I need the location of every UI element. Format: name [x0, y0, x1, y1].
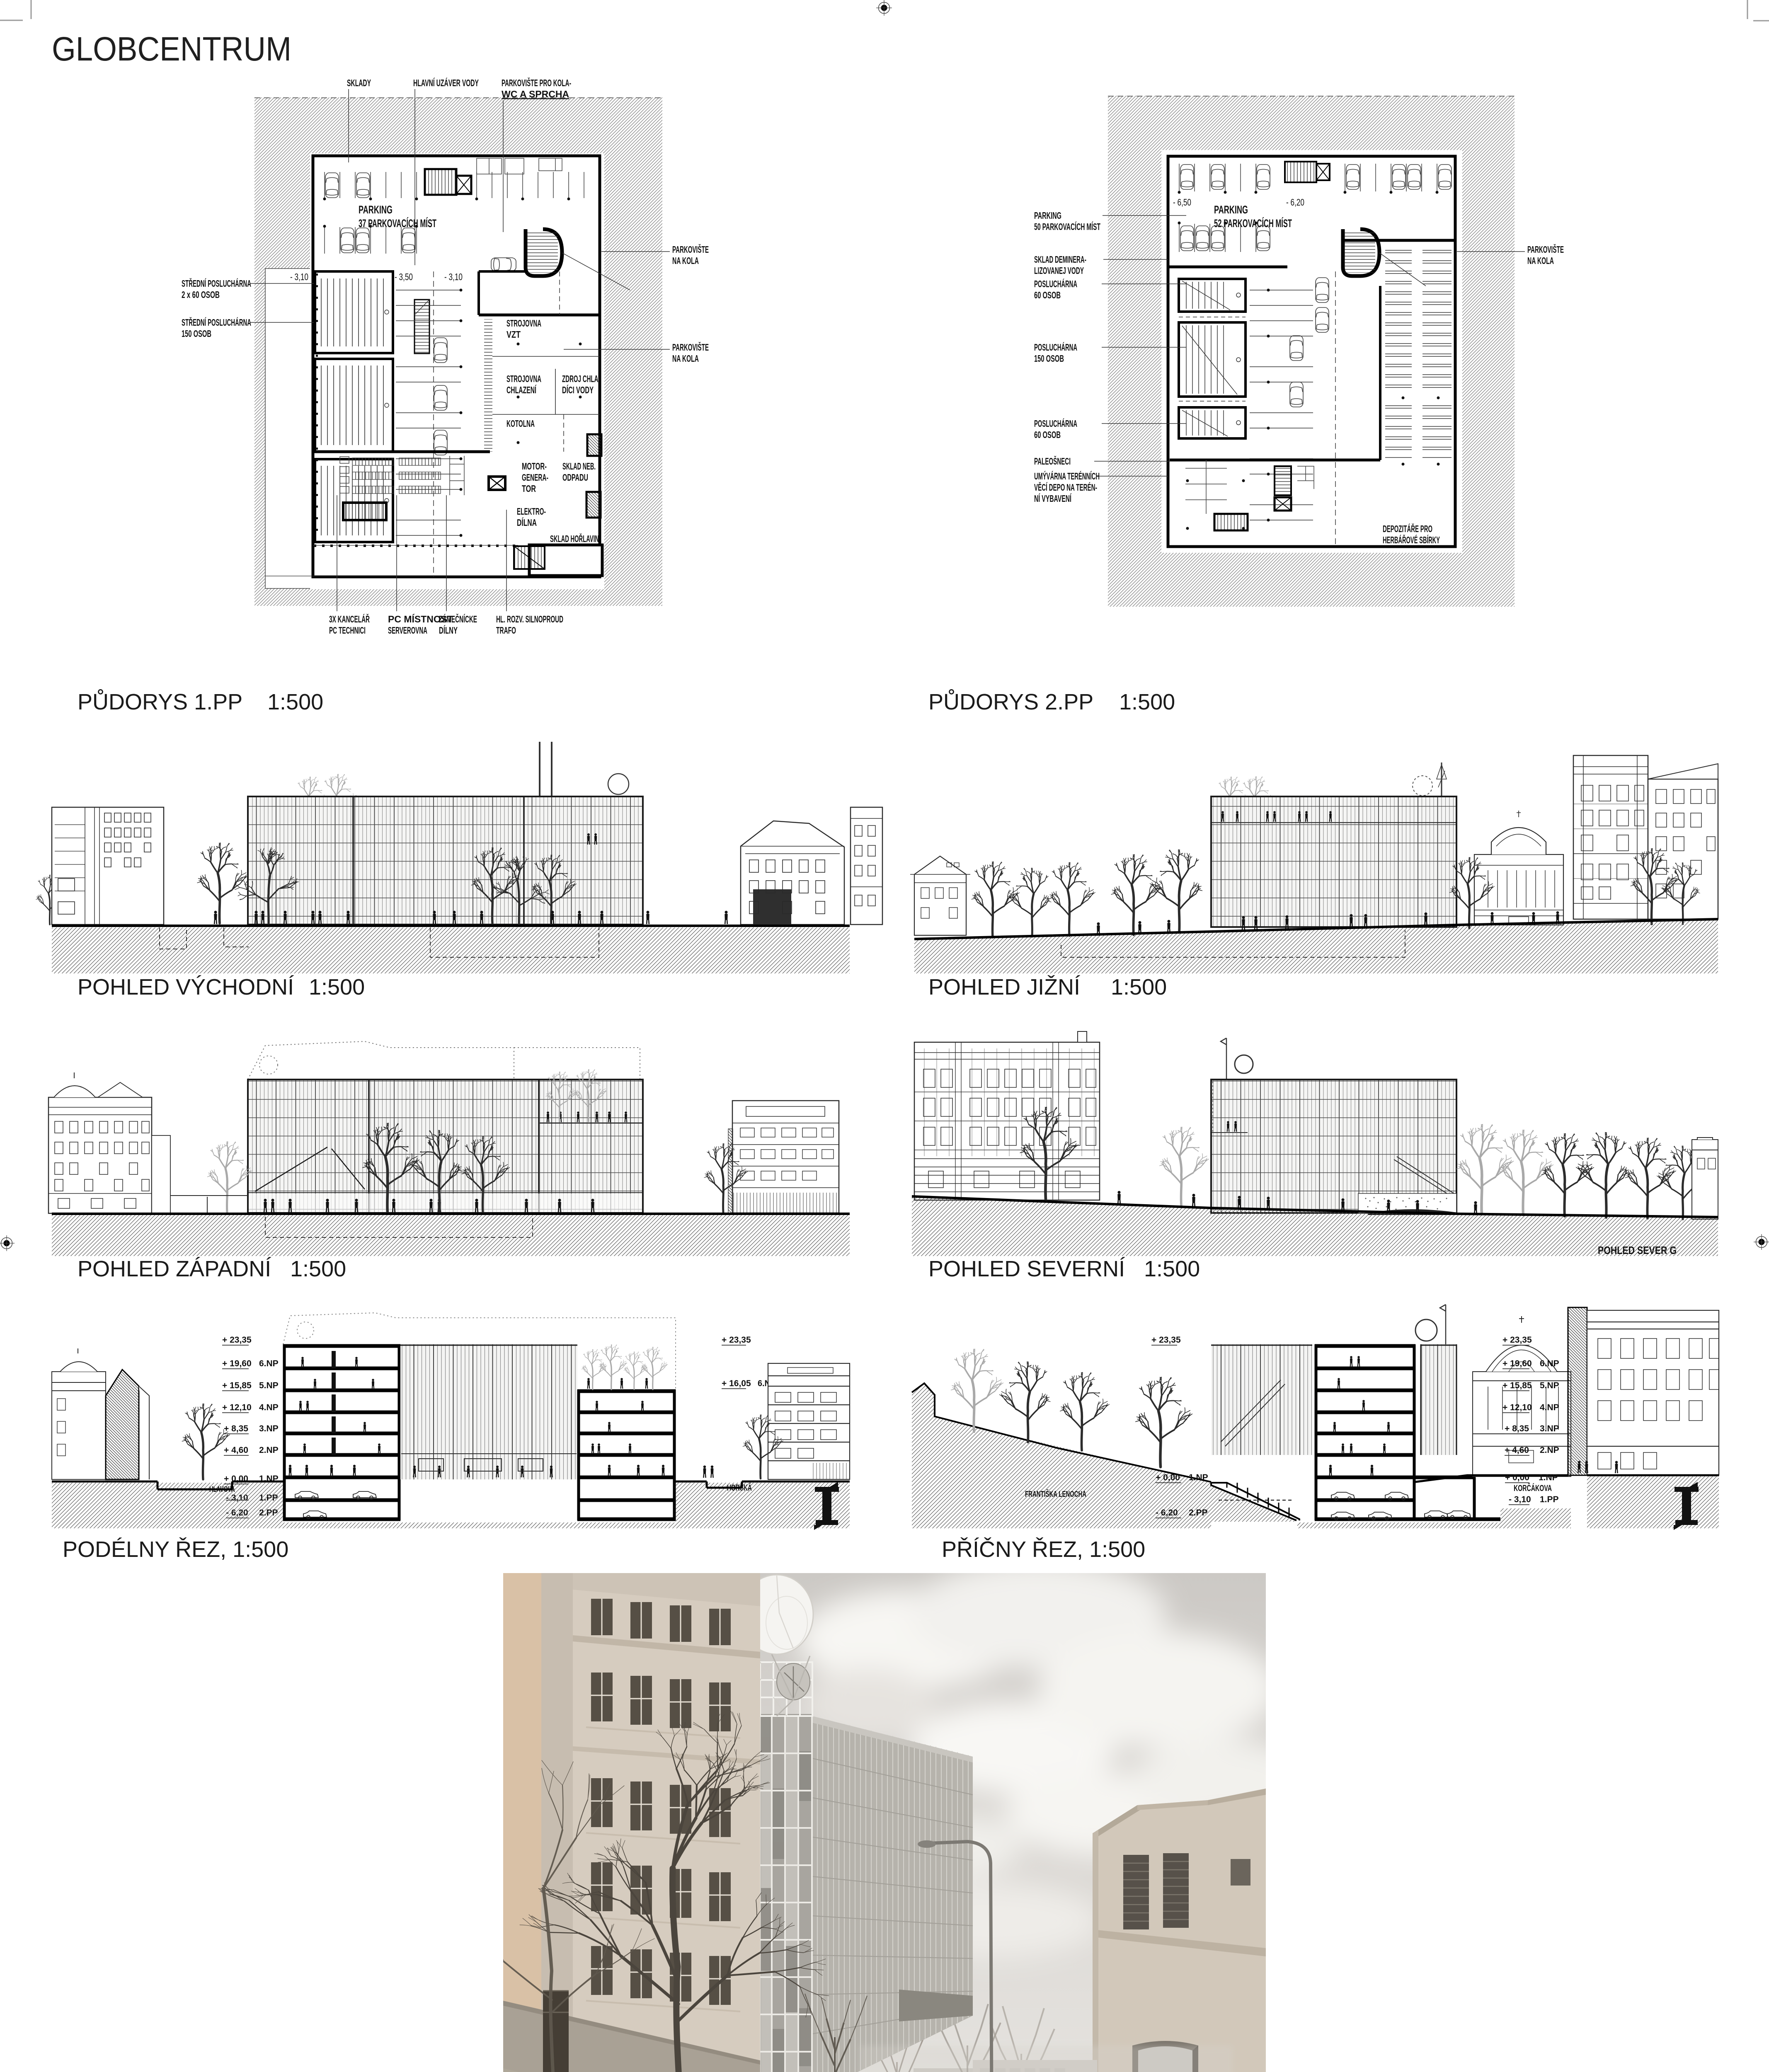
svg-text:+ 23,35: + 23,35 — [722, 1335, 751, 1345]
svg-text:PŮDORYS 2.PP: PŮDORYS 2.PP — [928, 689, 1093, 714]
svg-text:- 6,50: - 6,50 — [1173, 197, 1191, 208]
svg-text:5.NP: 5.NP — [259, 1381, 279, 1390]
svg-text:PARKING: PARKING — [359, 203, 393, 216]
svg-text:+ 4,60: + 4,60 — [1505, 1445, 1529, 1455]
svg-text:HLAVNÍ UZÁVER VODY: HLAVNÍ UZÁVER VODY — [413, 77, 479, 88]
svg-text:+ 12,10: + 12,10 — [1502, 1403, 1532, 1412]
svg-text:3X KANCELÁŘ: 3X KANCELÁŘ — [329, 613, 370, 625]
svg-text:PARKOVIŠTE: PARKOVIŠTE — [672, 244, 709, 255]
svg-text:1.NP: 1.NP — [1189, 1473, 1208, 1482]
svg-text:- 6,20: - 6,20 — [1156, 1508, 1178, 1518]
svg-text:3.NP: 3.NP — [259, 1424, 279, 1433]
svg-text:POHLED SEVERNÍ: POHLED SEVERNÍ — [928, 1256, 1125, 1281]
svg-text:STŘEDNÍ POSLUCHÁRNA: STŘEDNÍ POSLUCHÁRNA — [182, 317, 251, 328]
svg-text:1:500: 1:500 — [267, 690, 323, 714]
svg-text:2.NP: 2.NP — [259, 1445, 279, 1455]
svg-text:+ 15,85: + 15,85 — [1502, 1381, 1532, 1390]
svg-text:POSLUCHÁRNA: POSLUCHÁRNA — [1034, 418, 1077, 429]
svg-text:- 3,10: - 3,10 — [1509, 1495, 1531, 1504]
svg-text:POHLED SEVER G: POHLED SEVER G — [1598, 1244, 1677, 1256]
svg-text:4.NP: 4.NP — [1540, 1403, 1559, 1412]
svg-text:PARKING: PARKING — [1214, 203, 1248, 216]
svg-text:SKLAD HOŘLAVIN: SKLAD HOŘLAVIN — [550, 533, 599, 544]
svg-text:SKLAD DEMINERA-: SKLAD DEMINERA- — [1034, 254, 1086, 265]
svg-text:2.NP: 2.NP — [1540, 1445, 1559, 1455]
svg-text:PŘÍČNY ŘEZ, 1:500: PŘÍČNY ŘEZ, 1:500 — [942, 1537, 1145, 1562]
svg-text:37 PARKOVACÍCH MÍST: 37 PARKOVACÍCH MÍST — [359, 217, 436, 230]
svg-text:DÍLNA: DÍLNA — [517, 517, 537, 528]
svg-text:1:500: 1:500 — [1111, 975, 1167, 1000]
svg-text:STROJOVNA: STROJOVNA — [506, 373, 541, 384]
svg-text:DÍLNY: DÍLNY — [439, 625, 458, 636]
svg-text:POSLUCHÁRNA: POSLUCHÁRNA — [1034, 278, 1077, 289]
svg-text:1.PP: 1.PP — [1540, 1495, 1559, 1504]
svg-text:CHLAZENÍ: CHLAZENÍ — [506, 384, 536, 395]
svg-text:+ 15,85: + 15,85 — [222, 1381, 252, 1390]
svg-text:+ 23,35: + 23,35 — [1151, 1335, 1181, 1345]
svg-text:ZÁMEČNÍCKE: ZÁMEČNÍCKE — [439, 613, 477, 625]
svg-text:PARKING: PARKING — [1034, 210, 1061, 221]
svg-text:PARKOVIŠTE: PARKOVIŠTE — [672, 341, 709, 353]
svg-text:+ 19,60: + 19,60 — [222, 1359, 252, 1368]
svg-text:50 PARKOVACÍCH MÍST: 50 PARKOVACÍCH MÍST — [1034, 221, 1100, 232]
svg-text:WC A SPRCHA: WC A SPRCHA — [502, 89, 569, 99]
svg-text:PARKOVIŠTE: PARKOVIŠTE — [1527, 244, 1564, 255]
svg-text:+ 23,35: + 23,35 — [1502, 1335, 1532, 1345]
svg-text:UMÝVÁRNA TERÉNNÍCH: UMÝVÁRNA TERÉNNÍCH — [1034, 470, 1100, 482]
svg-text:POHLED JIŽNÍ: POHLED JIŽNÍ — [928, 975, 1080, 1000]
svg-text:SKLADY: SKLADY — [347, 77, 371, 88]
svg-text:5.NP: 5.NP — [1540, 1381, 1559, 1390]
svg-text:+ 8,35: + 8,35 — [1505, 1424, 1529, 1433]
svg-text:FRANTIŠKA LENOCHA: FRANTIŠKA LENOCHA — [1025, 1489, 1086, 1499]
svg-text:STŘEDNÍ POSLUCHÁRNA: STŘEDNÍ POSLUCHÁRNA — [182, 278, 251, 289]
svg-text:150 OSOB: 150 OSOB — [1034, 353, 1064, 364]
svg-text:HL. ROZV. SILNOPROUD: HL. ROZV. SILNOPROUD — [496, 614, 563, 625]
svg-text:MOTOR-: MOTOR- — [522, 461, 547, 472]
svg-text:4.NP: 4.NP — [259, 1403, 279, 1412]
svg-text:NA KOLA: NA KOLA — [672, 353, 699, 364]
svg-text:- 3,10: - 3,10 — [444, 271, 463, 282]
svg-text:VZT: VZT — [506, 329, 521, 340]
svg-text:60 OSOB: 60 OSOB — [1034, 429, 1061, 440]
svg-text:+ 0,00: + 0,00 — [1156, 1473, 1180, 1482]
svg-text:GLOBCENTRUM: GLOBCENTRUM — [52, 30, 291, 68]
svg-text:2 x 60 OSOB: 2 x 60 OSOB — [182, 289, 220, 300]
svg-text:NA KOLA: NA KOLA — [672, 255, 699, 266]
svg-text:PŮDORYS 1.PP: PŮDORYS 1.PP — [78, 689, 242, 714]
svg-text:- 3,10: - 3,10 — [290, 271, 308, 282]
svg-text:ELEKTRO-: ELEKTRO- — [517, 506, 546, 517]
svg-text:PC TECHNICI: PC TECHNICI — [329, 625, 366, 636]
svg-text:+ 16,05: + 16,05 — [722, 1379, 751, 1388]
svg-text:KORČÁKOVA: KORČÁKOVA — [1514, 1483, 1552, 1493]
svg-text:60 OSOB: 60 OSOB — [1034, 290, 1061, 300]
svg-text:6.NP: 6.NP — [259, 1359, 279, 1368]
svg-text:2.PP: 2.PP — [1189, 1508, 1208, 1518]
svg-text:SERVEROVNA: SERVEROVNA — [388, 625, 427, 636]
svg-text:LIZOVANEJ VODY: LIZOVANEJ VODY — [1034, 265, 1084, 276]
svg-text:ZDROJ CHLA-: ZDROJ CHLA- — [562, 373, 600, 384]
svg-text:KOTOLNA: KOTOLNA — [506, 418, 535, 429]
svg-text:PALEOŠNECI: PALEOŠNECI — [1034, 455, 1071, 467]
svg-text:6.NP: 6.NP — [1540, 1359, 1559, 1368]
svg-text:+ 19,60: + 19,60 — [1502, 1359, 1532, 1368]
svg-text:1:500: 1:500 — [309, 975, 365, 1000]
svg-text:POSLUCHÁRNA: POSLUCHÁRNA — [1034, 341, 1077, 353]
svg-text:+ 12,10: + 12,10 — [222, 1403, 252, 1412]
svg-text:GENERA-: GENERA- — [522, 472, 548, 483]
svg-text:ODPADU: ODPADU — [562, 472, 588, 483]
svg-text:1:500: 1:500 — [1144, 1256, 1200, 1281]
svg-text:SKLAD NEB.: SKLAD NEB. — [562, 461, 596, 472]
svg-text:- 3,50: - 3,50 — [395, 271, 413, 282]
svg-text:DÍCI VODY: DÍCI VODY — [562, 384, 594, 395]
svg-text:NÍ VYBAVENÍ: NÍ VYBAVENÍ — [1034, 493, 1071, 504]
svg-text:- 6,20: - 6,20 — [1286, 197, 1304, 208]
svg-text:PODÉLNY ŘEZ, 1:500: PODÉLNY ŘEZ, 1:500 — [63, 1537, 288, 1562]
svg-text:1:500: 1:500 — [1119, 690, 1175, 714]
svg-text:STROJOVNA: STROJOVNA — [506, 318, 541, 329]
svg-text:TOR: TOR — [522, 483, 536, 494]
svg-text:+ 23,35: + 23,35 — [222, 1335, 252, 1345]
svg-text:TRAFO: TRAFO — [496, 625, 516, 636]
svg-text:DEPOZITÁŘE PRO: DEPOZITÁŘE PRO — [1383, 523, 1432, 534]
svg-text:3.NP: 3.NP — [1540, 1424, 1559, 1433]
svg-text:VĚCÍ DEPO NA TERÉN-: VĚCÍ DEPO NA TERÉN- — [1034, 482, 1097, 493]
svg-text:NA KOLA: NA KOLA — [1527, 255, 1554, 266]
svg-text:POHLED VÝCHODNÍ: POHLED VÝCHODNÍ — [78, 975, 294, 1000]
svg-text:+ 4,60: + 4,60 — [224, 1445, 248, 1455]
svg-text:150 OSOB: 150 OSOB — [182, 328, 211, 339]
svg-text:HERBÁŘOVÉ SBÍRKY: HERBÁŘOVÉ SBÍRKY — [1383, 534, 1440, 545]
svg-text:PARKOVIŠTE PRO KOLA-: PARKOVIŠTE PRO KOLA- — [502, 77, 571, 88]
svg-text:POHLED ZÁPADNÍ: POHLED ZÁPADNÍ — [78, 1256, 271, 1281]
svg-text:1.NP: 1.NP — [1539, 1473, 1558, 1482]
svg-text:+ 0,00: + 0,00 — [1505, 1473, 1529, 1482]
svg-text:1:500: 1:500 — [290, 1256, 346, 1281]
